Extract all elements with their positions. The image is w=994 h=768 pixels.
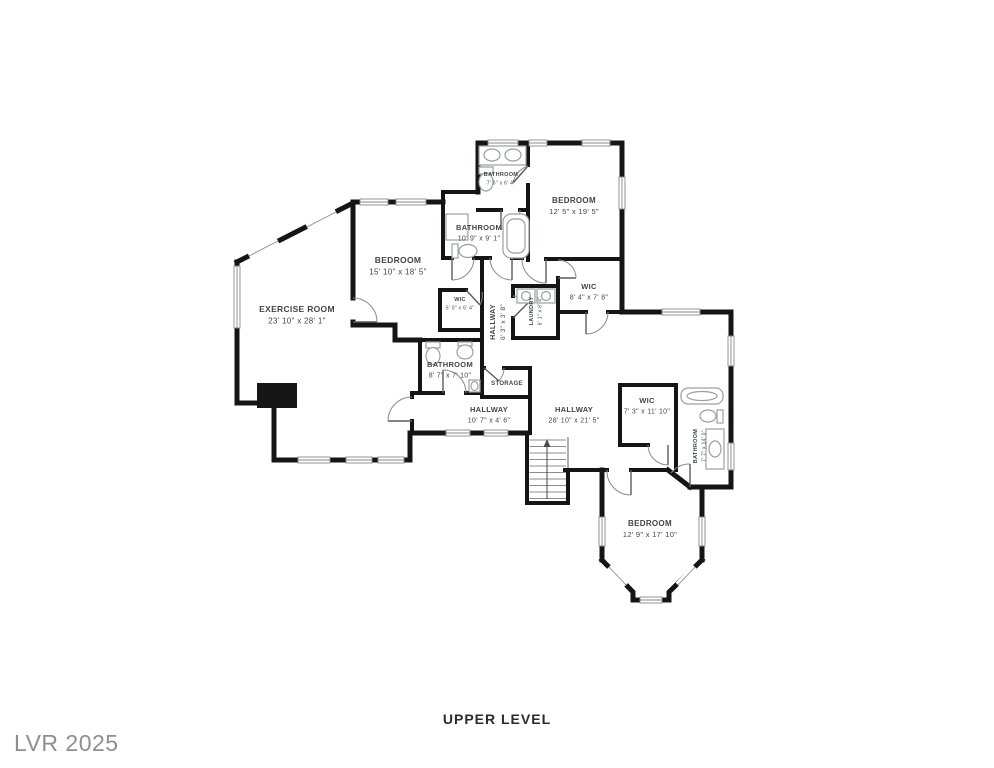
window-icon <box>662 309 700 315</box>
svg-text:BATHROOM: BATHROOM <box>693 429 699 463</box>
door-icon <box>490 258 512 280</box>
window-icon <box>678 567 695 585</box>
window-icon <box>699 517 705 546</box>
svg-text:28' 10" x 21' 5": 28' 10" x 21' 5" <box>549 418 600 425</box>
svg-text:7' 6" x 6' 4": 7' 6" x 6' 4" <box>487 181 516 187</box>
window-icon <box>346 457 372 463</box>
svg-text:7' 3" x 11' 10": 7' 3" x 11' 10" <box>624 409 670 416</box>
window-icon <box>446 430 470 436</box>
svg-text:12' 5" x 19' 5": 12' 5" x 19' 5" <box>549 207 599 216</box>
svg-text:HALLWAY: HALLWAY <box>470 405 508 414</box>
sink-icon <box>457 342 473 359</box>
room-label-hallway-west: HALLWAY10' 7" x 4' 6" <box>468 405 511 425</box>
svg-text:7' 7" x 14' 0": 7' 7" x 14' 0" <box>702 430 708 462</box>
door-icon <box>586 312 608 334</box>
room-label-storage: STORAGE <box>491 381 523 387</box>
level-title: UPPER LEVEL <box>0 711 994 727</box>
room-label-bedroom-south: BEDROOM12' 9" x 17' 10" <box>623 519 677 539</box>
window-icon <box>488 140 518 146</box>
window-icon <box>484 430 508 436</box>
room-label-hallway-main: HALLWAY28' 10" x 21' 5" <box>549 405 600 425</box>
window-icon <box>728 336 734 366</box>
toilet-icon <box>479 167 493 191</box>
svg-text:EXERCISE ROOM: EXERCISE ROOM <box>259 304 335 314</box>
stairs-icon <box>530 437 569 499</box>
window-icon <box>599 517 605 546</box>
svg-text:WIC: WIC <box>581 282 597 291</box>
sink-icon <box>479 146 526 165</box>
window-icon <box>619 177 625 209</box>
svg-text:8' 4" x 7' 8": 8' 4" x 7' 8" <box>570 295 609 302</box>
svg-text:BATHROOM: BATHROOM <box>427 360 473 369</box>
svg-text:23' 10" x 28' 1": 23' 10" x 28' 1" <box>268 317 326 326</box>
toilet-icon <box>452 244 477 258</box>
sink-icon <box>469 380 480 392</box>
room-label-exercise-room: EXERCISE ROOM23' 10" x 28' 1" <box>259 304 335 326</box>
room-label-laundry: LAUNDRY6' 1" x 6' 4" <box>529 297 544 326</box>
window-icon <box>728 443 734 470</box>
svg-text:LAUNDRY: LAUNDRY <box>529 297 535 326</box>
svg-text:10' 7" x 4' 6": 10' 7" x 4' 6" <box>468 418 511 425</box>
floor-plan-page: EXERCISE ROOM23' 10" x 28' 1"BEDROOM15' … <box>0 0 994 768</box>
window-icon <box>609 567 626 585</box>
svg-text:WIC: WIC <box>639 396 655 405</box>
watermark: LVR 2025 <box>14 730 119 757</box>
window-icon <box>249 241 278 256</box>
room-label-hallway-center: HALLWAY6' 3" x 3' 8" <box>490 304 507 340</box>
svg-text:5' 0" x 6' 4": 5' 0" x 6' 4" <box>446 306 475 312</box>
svg-text:BEDROOM: BEDROOM <box>552 196 596 205</box>
svg-text:BATHROOM: BATHROOM <box>456 223 502 232</box>
svg-text:STORAGE: STORAGE <box>491 381 523 387</box>
svg-text:6' 3" x 3' 8": 6' 3" x 3' 8" <box>500 304 507 340</box>
fireplace <box>257 383 297 408</box>
door-icon <box>353 298 377 322</box>
window-icon <box>640 597 662 603</box>
room-label-wic-east: WIC7' 3" x 11' 10" <box>624 396 670 416</box>
door-icon <box>648 445 668 465</box>
svg-text:10' 9" x 9' 1": 10' 9" x 9' 1" <box>458 236 501 243</box>
door-icon <box>388 397 412 421</box>
svg-text:12' 9" x 17' 10": 12' 9" x 17' 10" <box>623 530 677 539</box>
svg-text:BATHROOM: BATHROOM <box>484 172 518 178</box>
room-label-bathroom-east: BATHROOM7' 7" x 14' 0" <box>693 429 708 463</box>
window-icon <box>234 266 240 328</box>
room-label-bedroom-north: BEDROOM12' 5" x 19' 5" <box>549 196 599 216</box>
svg-text:15' 10" x 18' 5": 15' 10" x 18' 5" <box>369 268 427 277</box>
window-icon <box>307 212 336 227</box>
floor-plan: EXERCISE ROOM23' 10" x 28' 1"BEDROOM15' … <box>0 0 994 768</box>
room-label-bathroom-center: BATHROOM8' 7" x 7' 10" <box>427 360 473 380</box>
door-icon <box>484 368 504 381</box>
window-icon <box>298 457 330 463</box>
svg-text:HALLWAY: HALLWAY <box>490 304 497 340</box>
window-icon <box>529 140 547 146</box>
window-icon <box>582 140 610 146</box>
sink-icon <box>706 429 724 469</box>
window-icon <box>378 457 404 463</box>
room-label-wic-small: WIC5' 0" x 6' 4" <box>446 297 475 312</box>
room-label-wic-north: WIC8' 4" x 7' 8" <box>570 282 609 302</box>
svg-text:BEDROOM: BEDROOM <box>628 519 672 528</box>
door-icon <box>522 259 546 283</box>
window-icon <box>396 199 426 205</box>
door-icon <box>607 470 631 495</box>
bathtub-icon <box>503 214 529 258</box>
svg-text:WIC: WIC <box>454 297 466 303</box>
svg-text:6' 1" x 6' 4": 6' 1" x 6' 4" <box>538 297 544 326</box>
svg-text:BEDROOM: BEDROOM <box>375 255 422 265</box>
door-icon <box>466 290 482 305</box>
door-icon <box>558 260 576 278</box>
svg-text:8' 7" x 7' 10": 8' 7" x 7' 10" <box>429 373 472 380</box>
window-icon <box>360 199 388 205</box>
door-icon <box>452 258 474 280</box>
toilet-icon <box>700 410 723 423</box>
svg-text:HALLWAY: HALLWAY <box>555 405 593 414</box>
room-label-bedroom-west: BEDROOM15' 10" x 18' 5" <box>369 255 427 277</box>
bathtub-icon <box>681 388 723 404</box>
